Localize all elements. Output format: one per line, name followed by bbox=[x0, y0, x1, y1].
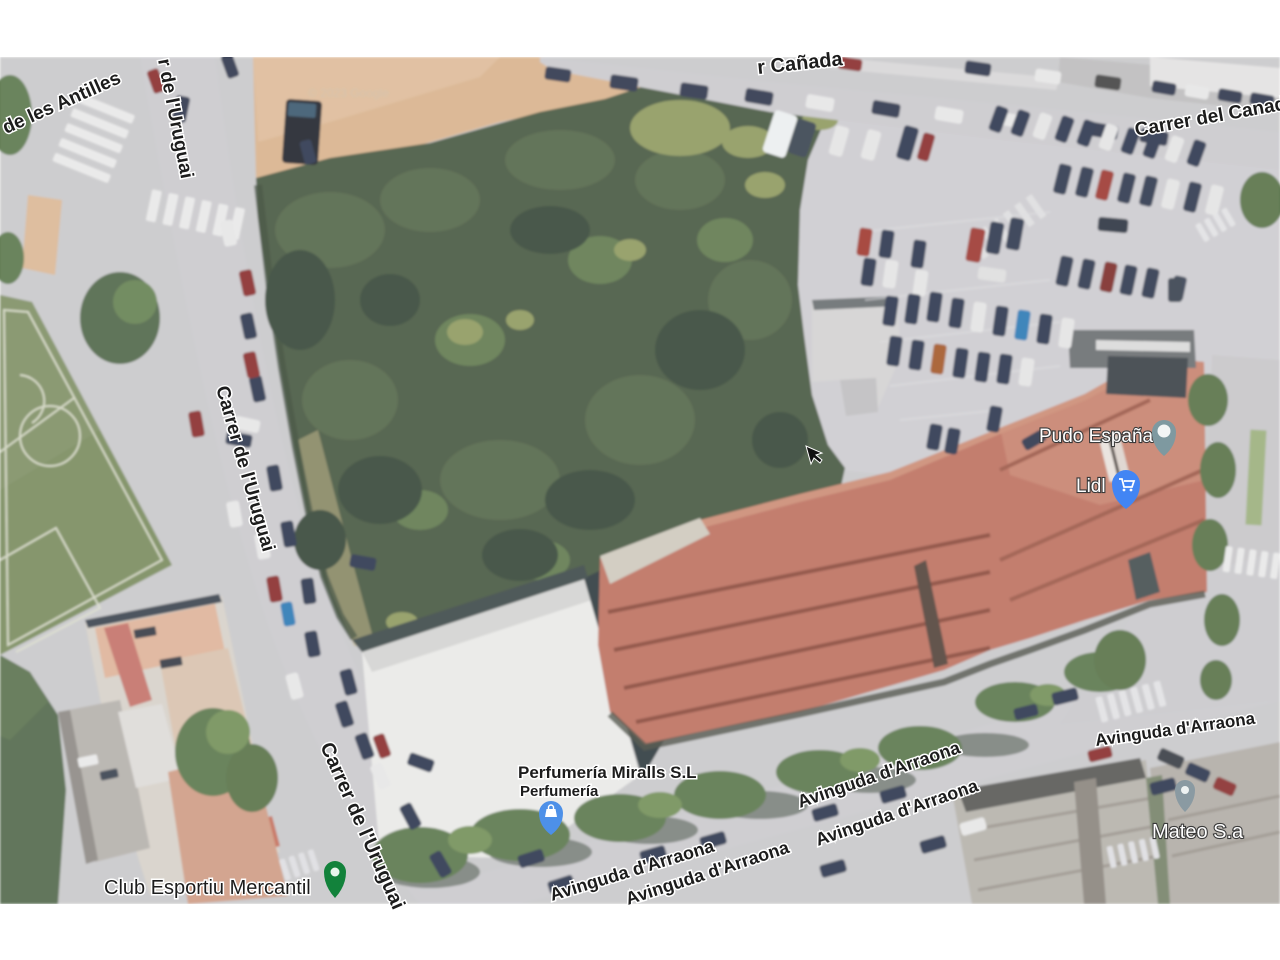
svg-text:Mateo S.a: Mateo S.a bbox=[1152, 821, 1244, 843]
svg-text:Perfumería Miralls S.L: Perfumería Miralls S.L bbox=[518, 763, 697, 782]
svg-text:Lidl: Lidl bbox=[1076, 476, 1106, 497]
svg-text:Perfumería: Perfumería bbox=[520, 783, 599, 800]
svg-text:Pudo España: Pudo España bbox=[1039, 426, 1154, 447]
svg-text:Club Esportiu Mercantil: Club Esportiu Mercantil bbox=[104, 877, 311, 899]
